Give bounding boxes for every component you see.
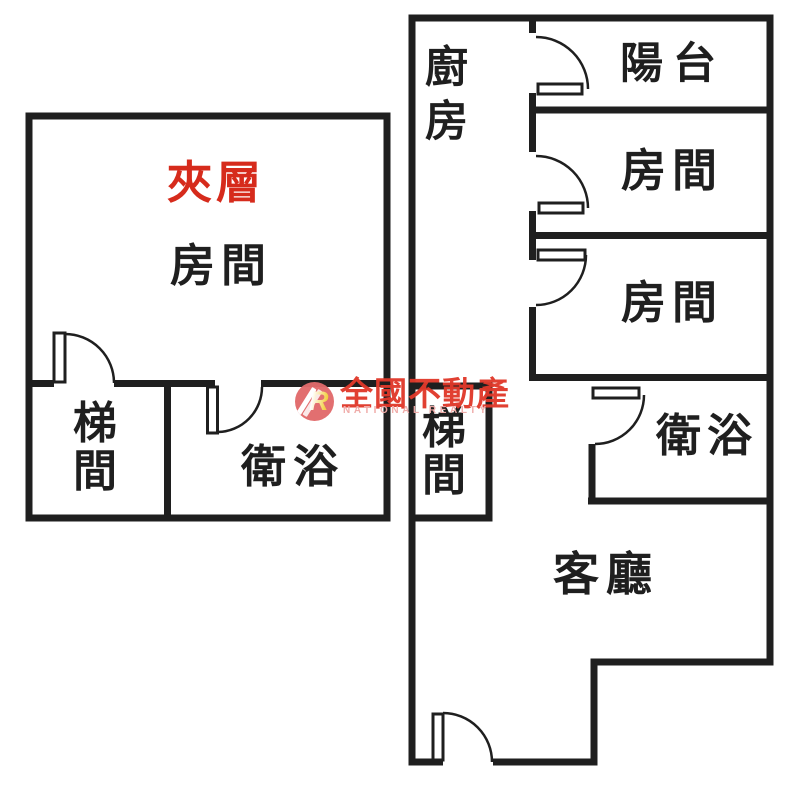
left-bathroom-door [208,387,263,433]
stair-char-2: 間 [73,450,117,494]
logo-letter: R [309,386,329,417]
kitchen-char-1: 廚 [425,47,468,90]
stair-char-1: 梯 [73,402,117,446]
kitchen-char-2: 房 [425,101,468,144]
door-leaf [539,203,583,213]
door-swing-arc [65,334,114,383]
room-label-left-stairwell: 梯 間 [73,402,117,494]
room-label-right-stairwell: 梯 間 [422,407,466,498]
room-label-bedroom1: 房間 [621,148,723,193]
stair-char-2: 間 [422,454,466,498]
door-swing-arc [595,395,644,444]
realty-logo-icon: R [295,382,334,421]
room-label-balcony: 陽台 [620,43,726,86]
door-leaf [538,84,582,94]
door-leaf [433,714,443,760]
room-label-mezzanine: 夾層 [167,160,265,205]
door-swing-arc [536,255,586,305]
door-leaf [593,388,639,398]
door-swing-arc [443,713,492,762]
floorplan-image: 夾層 房間 梯 間 衛浴 廚 房 陽台 房間 房間 衛浴 梯 間 客廳 R 全國… [0,0,800,797]
door-leaf [538,250,585,260]
door-leaf [208,387,218,433]
entry-door [433,713,492,762]
room-label-living-room: 客廳 [553,551,659,597]
room-label-kitchen: 廚 房 [425,47,468,144]
room-label-right-bathroom: 衛浴 [656,413,758,458]
left-stairwell-door [54,333,114,383]
room-label-left-bathroom: 衛浴 [241,444,345,489]
room-label-left-bedroom: 房間 [170,243,272,288]
bedroom1-door [536,156,588,213]
door-swing-arc [536,156,588,208]
bedroom2-door [536,250,586,305]
right-bathroom-door [593,388,644,444]
door-swing-arc [536,37,588,89]
room-label-bedroom2: 房間 [621,280,723,325]
door-swing-arc [218,387,262,432]
watermark-brand-subtitle: NATIONAL REALTY [343,406,490,416]
balcony-door [536,37,588,94]
door-leaf [54,333,65,382]
